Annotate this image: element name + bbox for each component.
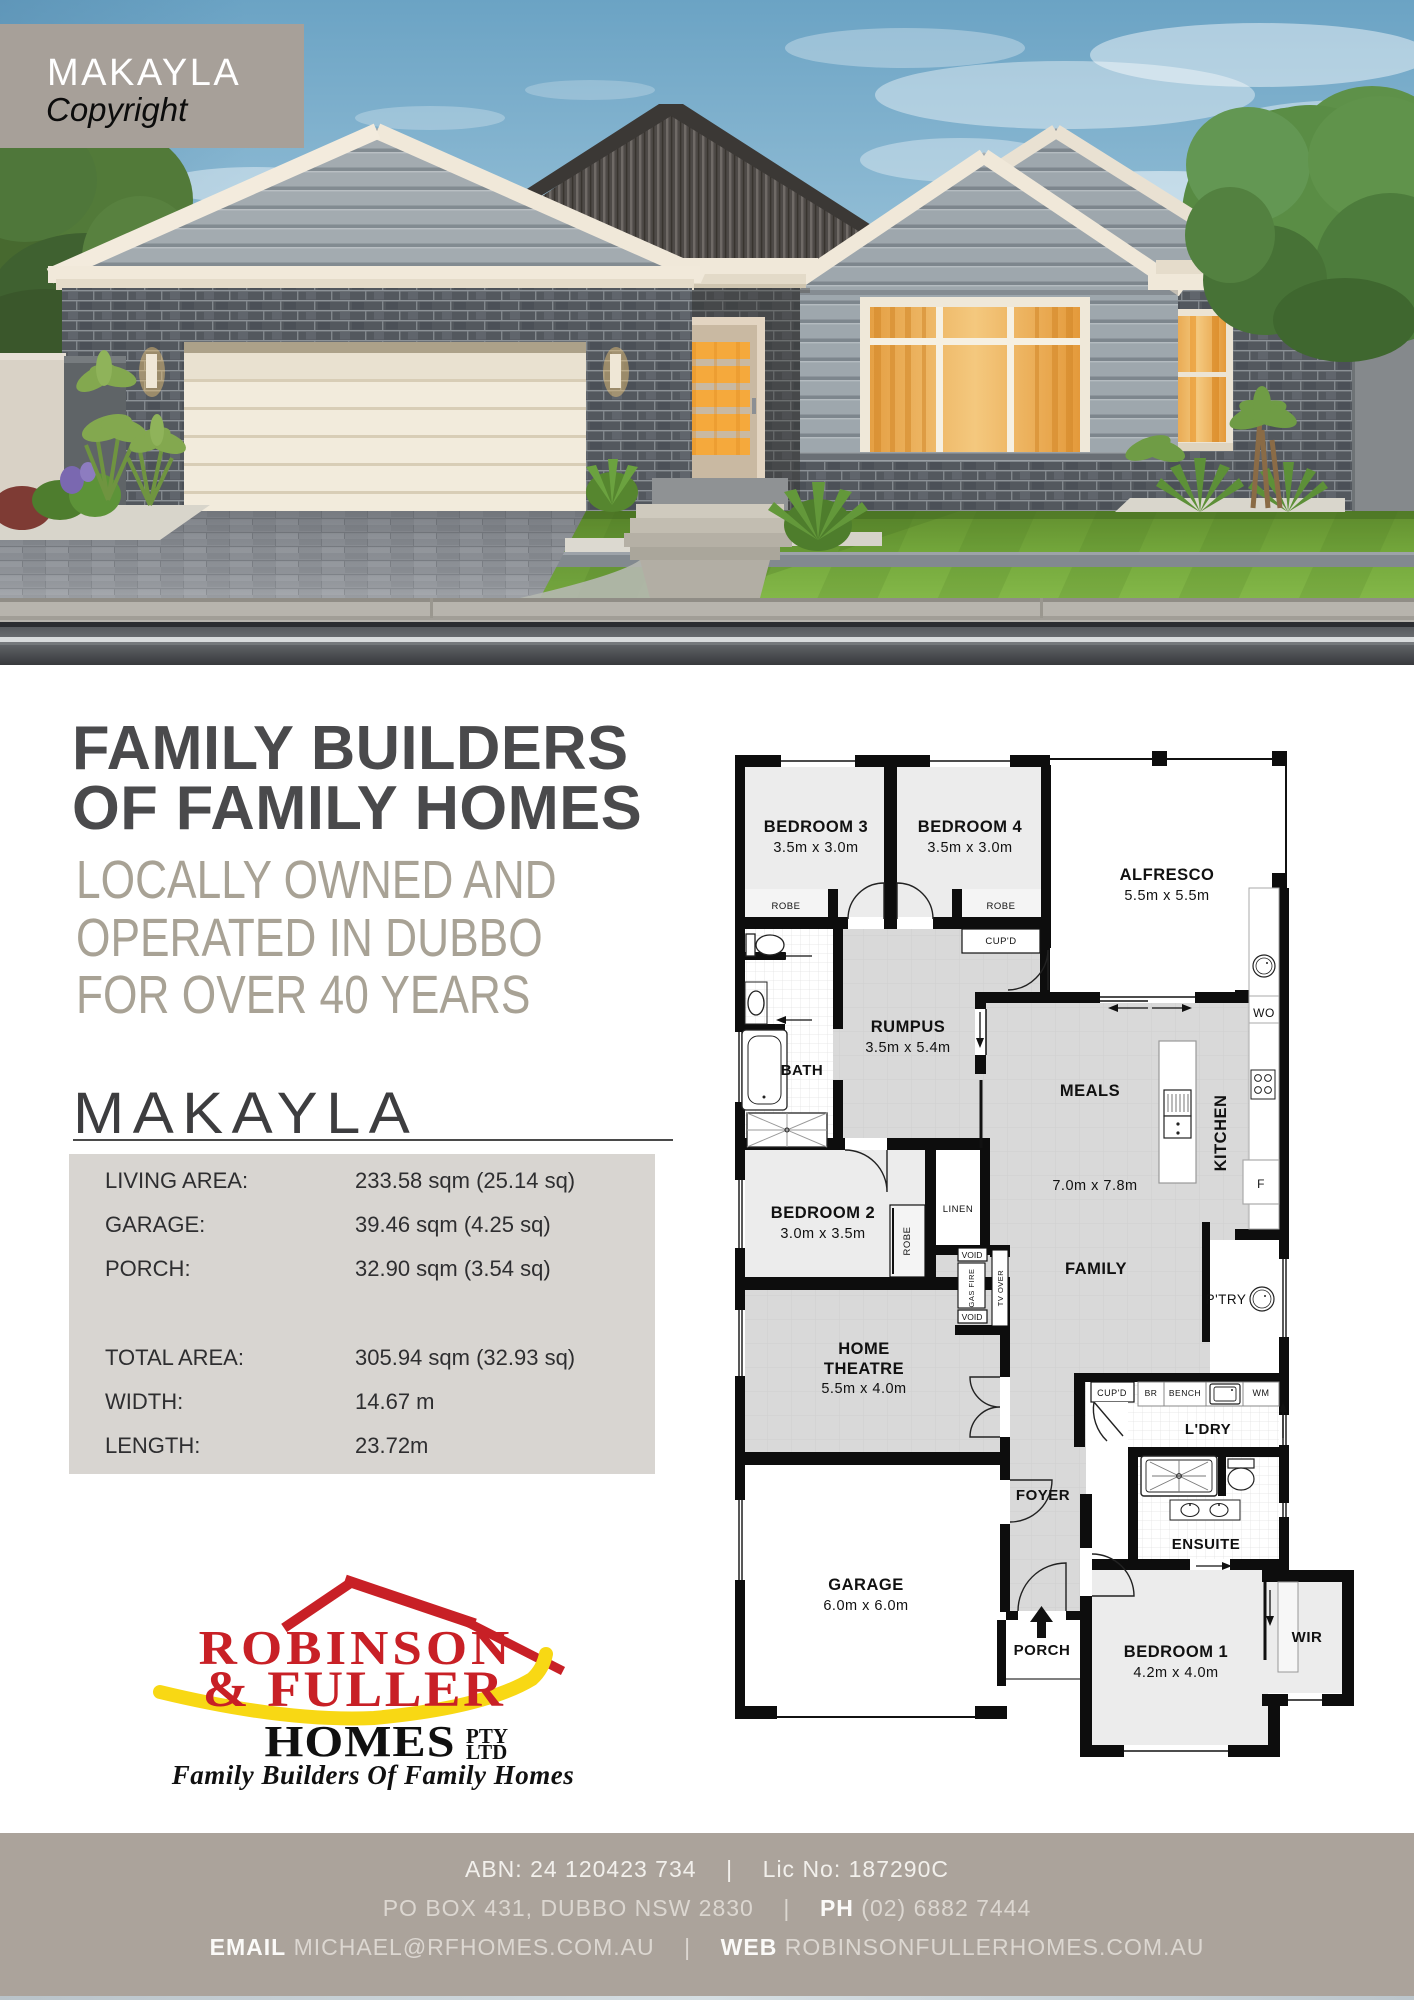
svg-text:P'TRY: P'TRY [1206, 1292, 1247, 1307]
svg-text:3.0m x 3.5m: 3.0m x 3.5m [780, 1226, 865, 1242]
svg-text:F: F [1257, 1177, 1265, 1191]
svg-text:BEDROOM 1: BEDROOM 1 [1124, 1643, 1228, 1661]
svg-text:3.5m x 3.0m: 3.5m x 3.0m [773, 840, 858, 856]
svg-text:CUP'D: CUP'D [1097, 1388, 1127, 1398]
svg-text:WO: WO [1253, 1006, 1275, 1020]
svg-text:HOMES: HOMES [264, 1718, 455, 1767]
svg-text:PORCH: PORCH [1014, 1642, 1071, 1659]
svg-text:BEDROOM 4: BEDROOM 4 [918, 818, 1023, 836]
svg-text:MEALS: MEALS [1060, 1082, 1120, 1100]
svg-text:GARAGE: GARAGE [828, 1576, 903, 1594]
svg-text:ROBE: ROBE [987, 901, 1016, 912]
svg-text:KITCHEN: KITCHEN [1212, 1095, 1230, 1172]
svg-text:3.5m x 3.0m: 3.5m x 3.0m [927, 840, 1012, 856]
svg-text:FOYER: FOYER [1016, 1487, 1070, 1504]
svg-text:5.5m x 4.0m: 5.5m x 4.0m [821, 1381, 906, 1397]
svg-text:VOID: VOID [962, 1312, 983, 1322]
svg-text:LINEN: LINEN [943, 1204, 973, 1215]
svg-text:RUMPUS: RUMPUS [871, 1018, 946, 1036]
svg-text:BEDROOM 3: BEDROOM 3 [764, 818, 868, 836]
svg-text:ALFRESCO: ALFRESCO [1120, 866, 1215, 884]
svg-text:CUP'D: CUP'D [985, 936, 1016, 947]
svg-text:Family Builders Of Family Home: Family Builders Of Family Homes [171, 1760, 575, 1790]
svg-text:3.5m x 5.4m: 3.5m x 5.4m [865, 1040, 950, 1056]
svg-text:& FULLER: & FULLER [203, 1662, 506, 1718]
svg-text:ROBE: ROBE [772, 901, 801, 912]
svg-text:6.0m x 6.0m: 6.0m x 6.0m [823, 1598, 908, 1614]
svg-text:7.0m x 7.8m: 7.0m x 7.8m [1052, 1178, 1137, 1194]
svg-text:BENCH: BENCH [1169, 1388, 1201, 1398]
svg-text:FAMILY: FAMILY [1065, 1260, 1127, 1278]
svg-text:ROBE: ROBE [902, 1227, 913, 1256]
svg-text:BR: BR [1145, 1388, 1158, 1398]
svg-text:GAS FIRE: GAS FIRE [967, 1268, 976, 1307]
svg-text:BEDROOM 2: BEDROOM 2 [771, 1204, 875, 1222]
svg-text:BATH: BATH [781, 1062, 824, 1079]
svg-text:4.2m x 4.0m: 4.2m x 4.0m [1133, 1665, 1218, 1681]
svg-text:THEATRE: THEATRE [824, 1360, 904, 1378]
svg-text:WIR: WIR [1292, 1629, 1323, 1646]
svg-text:ENSUITE: ENSUITE [1172, 1536, 1241, 1553]
svg-text:5.5m x 5.5m: 5.5m x 5.5m [1124, 888, 1209, 904]
svg-text:TV OVER: TV OVER [996, 1270, 1005, 1307]
svg-text:L'DRY: L'DRY [1185, 1421, 1231, 1438]
svg-text:WM: WM [1253, 1388, 1270, 1398]
svg-text:HOME: HOME [838, 1340, 890, 1358]
svg-text:VOID: VOID [962, 1250, 983, 1260]
